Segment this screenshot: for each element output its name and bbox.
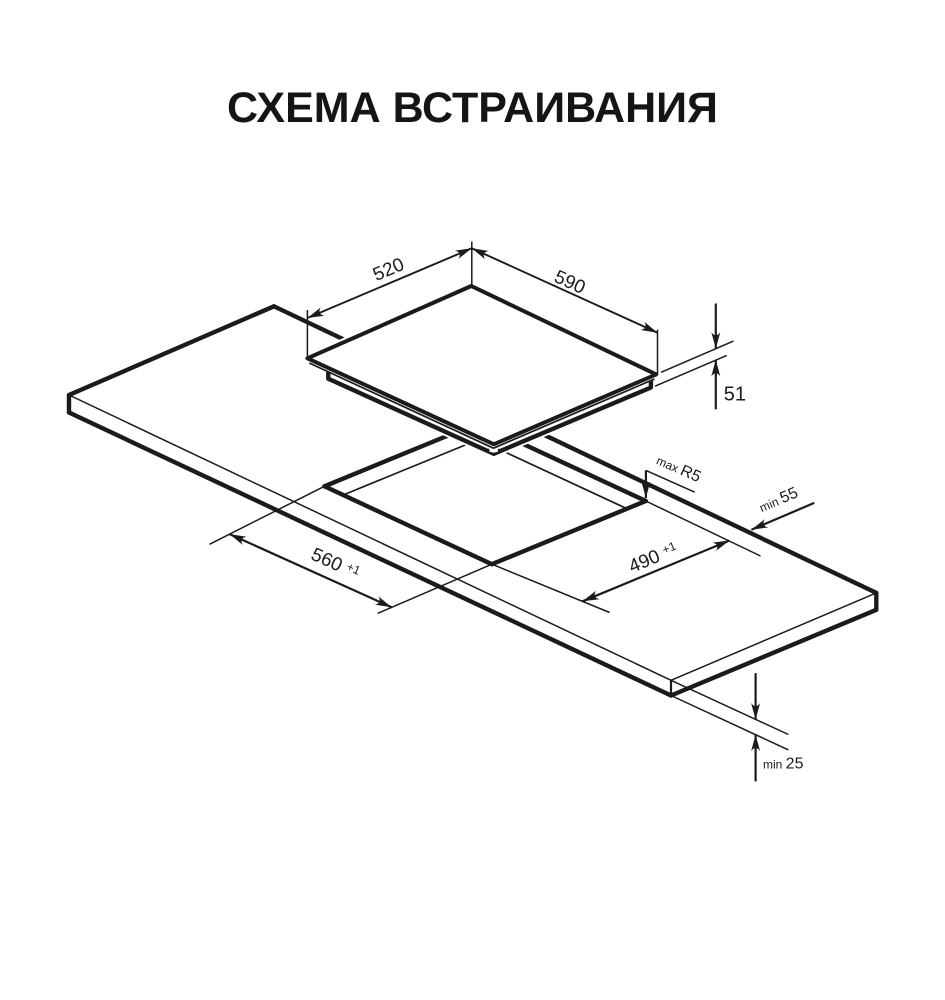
svg-text:590: 590 <box>551 267 589 299</box>
svg-text:51: 51 <box>724 384 746 406</box>
svg-text:520: 520 <box>370 254 407 286</box>
svg-text:560 +1: 560 +1 <box>308 544 363 584</box>
svg-text:max R5: max R5 <box>654 452 703 486</box>
svg-text:min 25: min 25 <box>763 756 804 773</box>
